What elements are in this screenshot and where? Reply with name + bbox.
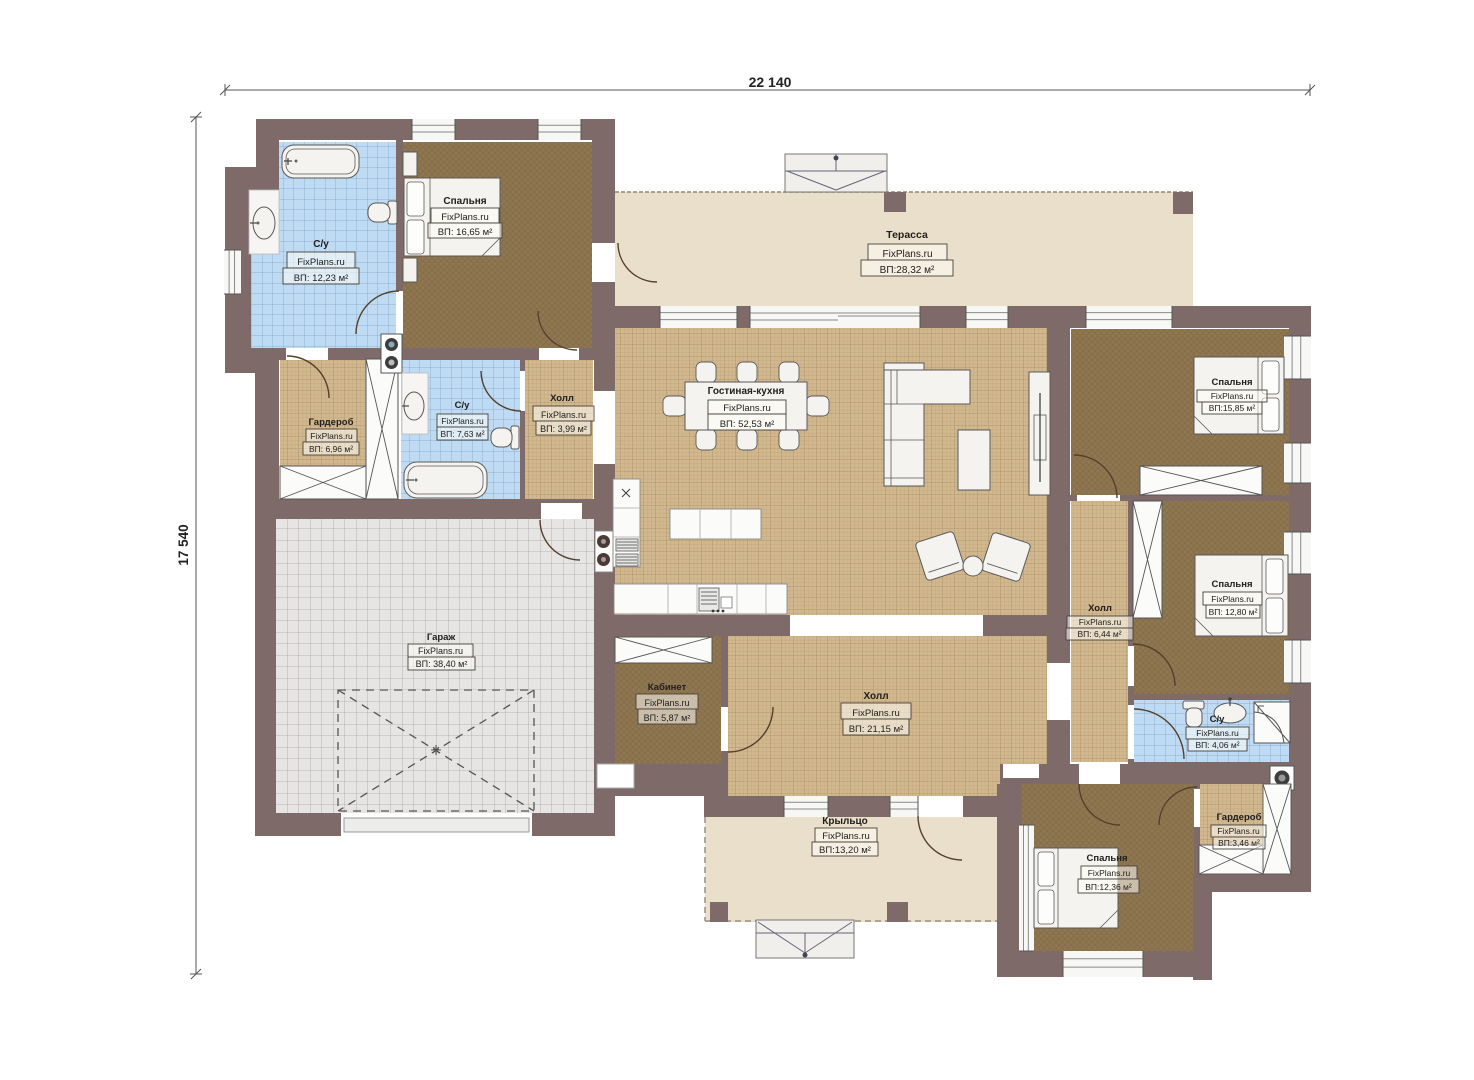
- svg-text:Холл: Холл: [550, 393, 574, 404]
- svg-text:ВП: 12,23 м²: ВП: 12,23 м²: [294, 273, 349, 284]
- svg-text:Гардероб: Гардероб: [1217, 812, 1262, 823]
- svg-text:ВП:12,36 м²: ВП:12,36 м²: [1085, 882, 1132, 892]
- svg-text:FixPlans.ru: FixPlans.ru: [1211, 594, 1254, 604]
- svg-text:22 140: 22 140: [749, 74, 792, 90]
- svg-text:FixPlans.ru: FixPlans.ru: [297, 257, 345, 268]
- svg-text:FixPlans.ru: FixPlans.ru: [541, 410, 586, 420]
- svg-text:Спальня: Спальня: [1211, 579, 1252, 590]
- svg-text:FixPlans.ru: FixPlans.ru: [822, 831, 870, 842]
- svg-text:Спальня: Спальня: [443, 196, 486, 207]
- svg-text:ВП: 38,40 м²: ВП: 38,40 м²: [416, 659, 468, 669]
- svg-text:FixPlans.ru: FixPlans.ru: [1217, 826, 1260, 836]
- svg-text:17 540: 17 540: [176, 524, 191, 565]
- svg-text:ВП: 52,53 м²: ВП: 52,53 м²: [720, 419, 775, 430]
- svg-text:Кабинет: Кабинет: [648, 682, 687, 693]
- svg-text:Спальня: Спальня: [1211, 377, 1252, 388]
- svg-text:ВП: 21,15 м²: ВП: 21,15 м²: [849, 724, 904, 735]
- svg-text:FixPlans.ru: FixPlans.ru: [644, 698, 689, 708]
- svg-text:FixPlans.ru: FixPlans.ru: [852, 708, 900, 719]
- svg-text:ВП:3,46 м²: ВП:3,46 м²: [1218, 838, 1260, 848]
- svg-text:Крыльцо: Крыльцо: [822, 816, 868, 827]
- svg-text:FixPlans.ru: FixPlans.ru: [723, 403, 771, 414]
- svg-text:FixPlans.ru: FixPlans.ru: [1079, 617, 1122, 627]
- svg-text:ВП: 6,44 м²: ВП: 6,44 м²: [1077, 629, 1121, 639]
- svg-text:ВП: 3,99 м²: ВП: 3,99 м²: [540, 424, 587, 434]
- svg-text:FixPlans.ru: FixPlans.ru: [1196, 728, 1239, 738]
- svg-text:Холл: Холл: [863, 691, 888, 702]
- svg-text:FixPlans.ru: FixPlans.ru: [418, 646, 463, 656]
- svg-text:FixPlans.ru: FixPlans.ru: [1211, 391, 1254, 401]
- svg-text:Гардероб: Гардероб: [309, 417, 354, 428]
- svg-text:FixPlans.ru: FixPlans.ru: [441, 416, 484, 426]
- svg-text:ВП:15,85 м²: ВП:15,85 м²: [1209, 403, 1256, 413]
- svg-text:ВП: 12,80 м²: ВП: 12,80 м²: [1209, 607, 1258, 617]
- svg-text:С/у: С/у: [455, 400, 471, 411]
- svg-text:FixPlans.ru: FixPlans.ru: [1088, 868, 1131, 878]
- svg-text:ВП: 6,96 м²: ВП: 6,96 м²: [309, 444, 353, 454]
- svg-text:ВП: 4,06 м²: ВП: 4,06 м²: [1195, 740, 1239, 750]
- svg-text:Терасса: Терасса: [886, 229, 928, 241]
- svg-text:Спальня: Спальня: [1086, 853, 1127, 864]
- svg-text:Гостиная-кухня: Гостиная-кухня: [708, 386, 785, 397]
- svg-text:С/у: С/у: [1210, 714, 1226, 725]
- svg-text:Холл: Холл: [1088, 603, 1112, 614]
- svg-text:ВП:28,32 м²: ВП:28,32 м²: [880, 265, 935, 276]
- svg-text:FixPlans.ru: FixPlans.ru: [441, 212, 489, 223]
- svg-text:Гараж: Гараж: [427, 632, 456, 643]
- svg-text:ВП: 5,87 м²: ВП: 5,87 м²: [644, 713, 691, 723]
- svg-text:С/у: С/у: [313, 239, 329, 250]
- svg-text:ВП: 16,65 м²: ВП: 16,65 м²: [438, 227, 493, 238]
- svg-text:FixPlans.ru: FixPlans.ru: [310, 431, 353, 441]
- svg-text:ВП: 7,63 м²: ВП: 7,63 м²: [440, 429, 484, 439]
- svg-text:ВП:13,20 м²: ВП:13,20 м²: [819, 845, 871, 856]
- svg-text:FixPlans.ru: FixPlans.ru: [882, 249, 932, 260]
